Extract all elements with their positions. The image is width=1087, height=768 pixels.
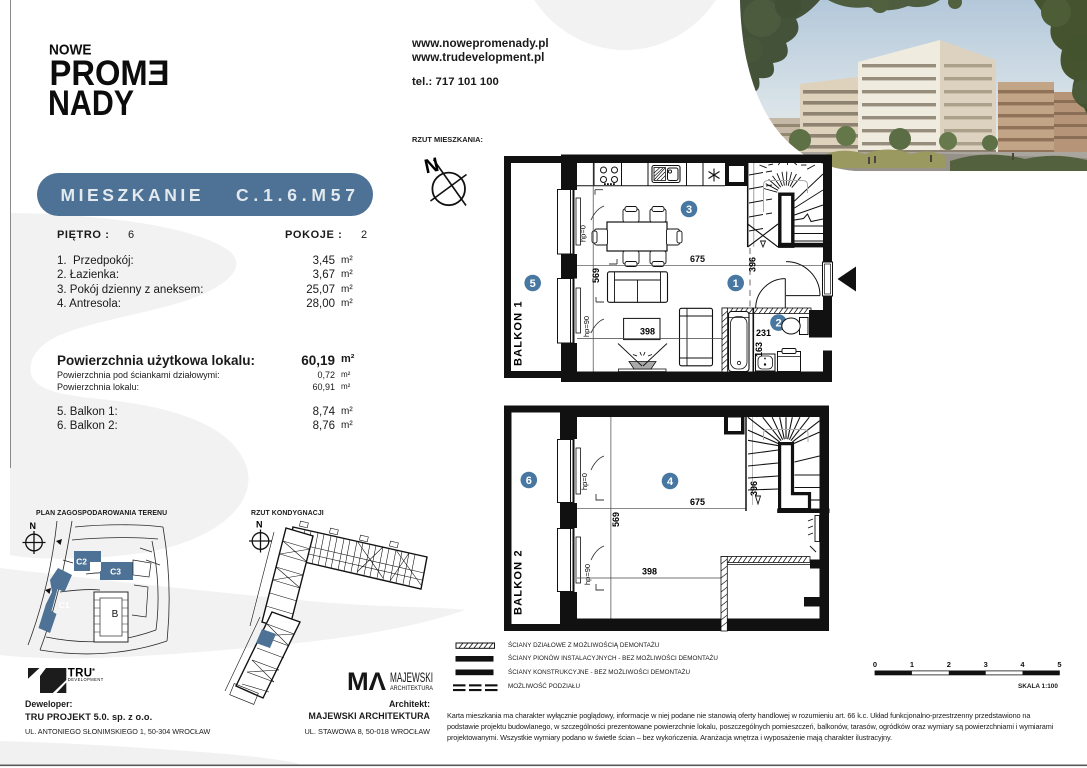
svg-text:C.1.6.M57: C.1.6.M57 [236, 185, 355, 205]
svg-text:MIESZKANIE: MIESZKANIE [61, 185, 201, 205]
